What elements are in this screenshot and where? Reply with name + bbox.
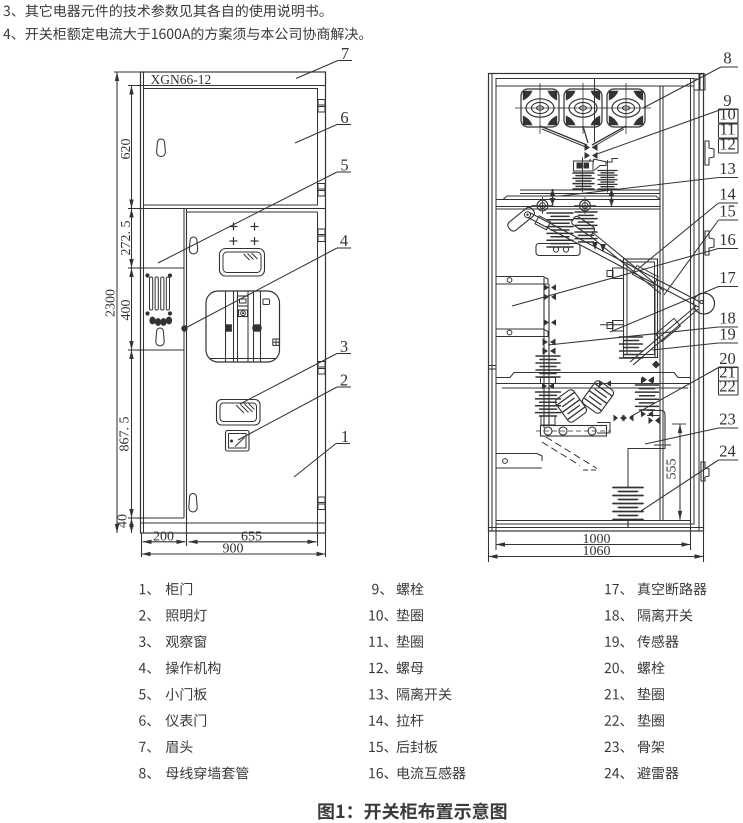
svg-text:12: 12 [719,135,736,154]
svg-text:2300: 2300 [104,289,119,317]
svg-text:620: 620 [119,139,134,160]
svg-text:867. 5: 867. 5 [118,417,133,452]
svg-text:23: 23 [719,410,736,429]
svg-text:19: 19 [719,325,736,344]
svg-text:900: 900 [223,542,244,557]
svg-text:400: 400 [119,300,134,321]
svg-text:8: 8 [723,49,731,68]
svg-text:17: 17 [719,268,736,287]
svg-text:655: 655 [241,530,262,545]
svg-text:XGN66-12: XGN66-12 [151,72,212,87]
svg-text:1060: 1060 [583,544,611,559]
svg-text:13: 13 [719,159,736,178]
svg-text:22: 22 [719,377,736,396]
svg-text:24: 24 [719,442,736,461]
svg-text:272. 5: 272. 5 [119,221,134,256]
svg-text:15: 15 [719,202,736,221]
svg-text:200: 200 [153,530,174,545]
svg-text:4: 4 [340,231,348,250]
svg-text:555: 555 [665,459,680,480]
svg-text:40: 40 [116,514,131,528]
svg-text:16: 16 [719,230,736,249]
